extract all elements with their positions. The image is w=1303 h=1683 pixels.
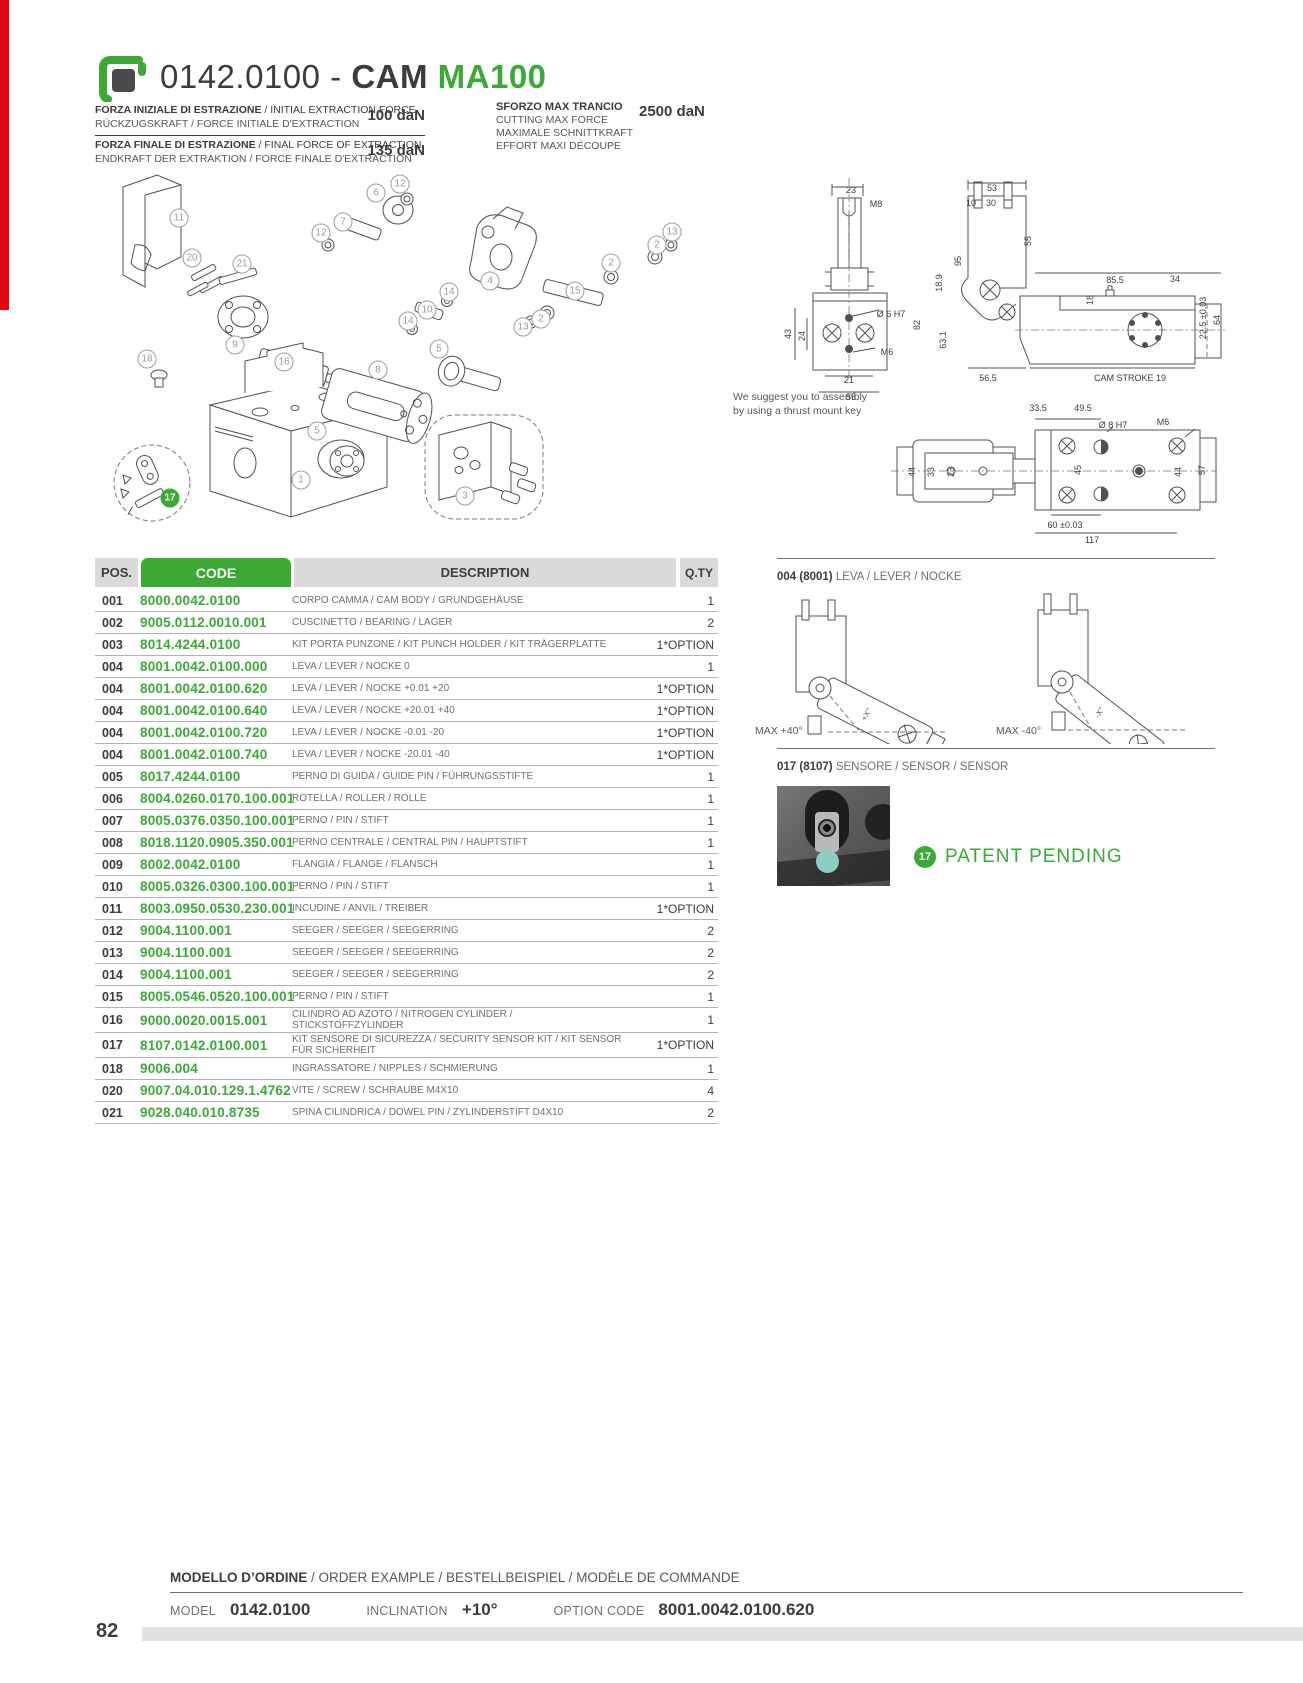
- row-description: INCUDINE / ANVIL / TREIBER: [292, 903, 628, 914]
- row-qty: 1*OPTION: [628, 682, 718, 696]
- exploded-view-drawing: 1161271220211324214101514213916185851317: [95, 165, 720, 530]
- table-row: 0068004.0260.0170.100.001ROTELLA / ROLLE…: [95, 788, 718, 810]
- row-pos: 017: [95, 1038, 140, 1052]
- part-balloon-3: 3: [456, 487, 475, 506]
- row-pos: 007: [95, 814, 140, 828]
- part-balloon-2: 2: [532, 310, 551, 329]
- row-qty: 1: [628, 770, 718, 784]
- dimension-label: Ø 8 H7: [1099, 420, 1128, 430]
- page-number: 82: [96, 1620, 118, 1643]
- title-model: MA100: [438, 58, 547, 95]
- table-row: 0158005.0546.0520.100.001PERNO / PIN / S…: [95, 986, 718, 1008]
- dimension-label: 55: [1023, 236, 1033, 246]
- row-code: 8002.0042.0100: [140, 857, 292, 872]
- model-value: 0142.0100: [230, 1600, 310, 1620]
- table-row: 0118003.0950.0530.230.001INCUDINE / ANVI…: [95, 898, 718, 920]
- part-balloon-5: 5: [430, 340, 449, 359]
- header-description: DESCRIPTION: [294, 558, 676, 587]
- row-code: 8001.0042.0100.720: [140, 725, 292, 740]
- row-pos: 015: [95, 990, 140, 1004]
- dimension-label: 49.5: [1074, 403, 1092, 413]
- part-balloon-11: 11: [170, 209, 189, 228]
- row-description: SPINA CILINDRICA / DOWEL PIN / ZYLINDERS…: [292, 1107, 628, 1118]
- row-pos: 005: [95, 770, 140, 784]
- row-pos: 012: [95, 924, 140, 938]
- row-qty: 1*OPTION: [628, 638, 718, 652]
- dimension-label: 57: [1197, 465, 1207, 475]
- row-description: ROTELLA / ROLLER / ROLLE: [292, 793, 628, 804]
- row-qty: 2: [628, 946, 718, 960]
- dimension-label: 56.5: [979, 373, 997, 383]
- row-qty: 1: [628, 814, 718, 828]
- option-code-value: 8001.0042.0100.620: [658, 1600, 814, 1620]
- part-balloon-6: 6: [367, 184, 386, 203]
- dimension-label: 34: [1170, 274, 1180, 284]
- row-pos: 009: [95, 858, 140, 872]
- dimension-label: 18: [1085, 295, 1095, 305]
- row-description: LEVA / LEVER / NOCKE 0: [292, 661, 628, 672]
- exploded-parts-sketch: [95, 165, 720, 530]
- table-row: 0178107.0142.0100.001KIT SENSORE DI SICU…: [95, 1033, 718, 1058]
- dimension-label: 21: [844, 375, 854, 385]
- row-description: VITE / SCREW / SCHRAUBE M4X10: [292, 1085, 628, 1096]
- part-balloon-18: 18: [138, 350, 157, 369]
- row-qty: 1: [628, 1062, 718, 1076]
- row-pos: 006: [95, 792, 140, 806]
- row-pos: 018: [95, 1062, 140, 1076]
- dimension-label: 24: [797, 331, 807, 341]
- part-balloon-12: 12: [312, 224, 331, 243]
- row-code: 8001.0042.0100.640: [140, 703, 292, 718]
- sensor-teal-cap: [816, 850, 839, 873]
- row-qty: 1*OPTION: [628, 726, 718, 740]
- title-code: 0142.0100: [160, 58, 321, 95]
- table-row: 0209007.04.010.129.1.4762VITE / SCREW / …: [95, 1080, 718, 1102]
- dimension-label: 44: [907, 467, 917, 477]
- row-code: 9028.040.010.8735: [140, 1105, 292, 1120]
- row-description: KIT SENSORE DI SICUREZZA / SECURITY SENS…: [292, 1034, 628, 1056]
- row-pos: 004: [95, 748, 140, 762]
- row-description: CUSCINETTO / BEARING / LAGER: [292, 617, 628, 628]
- part-balloon-4: 4: [481, 272, 500, 291]
- row-pos: 013: [95, 946, 140, 960]
- part-balloon-2: 2: [602, 254, 621, 273]
- sensor-lens: [818, 819, 836, 837]
- row-qty: 1: [628, 880, 718, 894]
- row-qty: 1*OPTION: [628, 748, 718, 762]
- table-row: 0048001.0042.0100.740LEVA / LEVER / NOCK…: [95, 744, 718, 766]
- brand-logo-icon: [95, 52, 149, 102]
- order-example-title: MODELLO D’ORDINE / ORDER EXAMPLE / BESTE…: [170, 1570, 740, 1585]
- row-code: 8005.0376.0350.100.001: [140, 813, 292, 828]
- header-qty: Q.TY: [680, 558, 718, 587]
- row-pos: 016: [95, 1013, 140, 1027]
- row-code: 8107.0142.0100.001: [140, 1038, 292, 1053]
- row-description: SEEGER / SEEGER / SEEGERRING: [292, 947, 628, 958]
- dimension-label: 64: [1212, 315, 1222, 325]
- dimension-label: 63.1: [938, 331, 948, 349]
- row-qty: 2: [628, 924, 718, 938]
- dimension-label: 60 ±0.03: [1048, 520, 1083, 530]
- part-balloon-8: 8: [369, 361, 388, 380]
- dimension-label: 22.5 ±0.03: [1198, 297, 1208, 339]
- dimension-label: 33: [926, 467, 936, 477]
- catalog-page: 0142.0100 - CAM MA100 FORZA INIZIALE DI …: [0, 0, 1303, 1683]
- row-code: 9007.04.010.129.1.4762: [140, 1083, 292, 1098]
- final-force-value: 135 daN: [367, 142, 425, 159]
- row-qty: 1*OPTION: [628, 1038, 718, 1052]
- order-rule: [170, 1592, 1243, 1593]
- row-code: 8001.0042.0100.000: [140, 659, 292, 674]
- table-row: 0129004.1100.001SEEGER / SEEGER / SEEGER…: [95, 920, 718, 942]
- part-balloon-10: 10: [418, 301, 437, 320]
- dimension-label: 23: [946, 467, 956, 477]
- row-code: 9006.004: [140, 1061, 292, 1076]
- cutting-force-spec: SFORZO MAX TRANCIO 2500 daN CUTTING MAX …: [496, 101, 711, 152]
- row-qty: 4: [628, 1084, 718, 1098]
- max-minus40-label: MAX -40°: [996, 725, 1041, 737]
- row-description: PERNO / PIN / STIFT: [292, 815, 628, 826]
- row-qty: 1: [628, 990, 718, 1004]
- option-code-label: OPTION CODE: [554, 1604, 645, 1618]
- row-code: 8001.0042.0100.620: [140, 681, 292, 696]
- row-code: 8017.4244.0100: [140, 769, 292, 784]
- row-pos: 004: [95, 682, 140, 696]
- dimension-label: 45: [1073, 465, 1083, 475]
- lever-section-heading: 004 (8001) LEVA / LEVER / NOCKE: [777, 571, 962, 583]
- part-balloon-16: 16: [275, 353, 294, 372]
- row-description: CILINDRO AD AZOTO / NITROGEN CYLINDER / …: [292, 1009, 628, 1031]
- row-pos: 010: [95, 880, 140, 894]
- row-description: PERNO CENTRALE / CENTRAL PIN / HAUPTSTIF…: [292, 837, 628, 848]
- row-description: FLANGIA / FLANGE / FLANSCH: [292, 859, 628, 870]
- row-qty: 1: [628, 1013, 718, 1027]
- dimension-label: 43: [783, 329, 793, 339]
- part-balloon-14: 14: [399, 312, 418, 331]
- lever-drawing-minus40: -X°: [1010, 592, 1210, 744]
- parts-table-body: 0018000.0042.0100CORPO CAMMA / CAM BODY …: [95, 590, 718, 1124]
- part-balloon-21: 21: [233, 255, 252, 274]
- row-description: PERNO / PIN / STIFT: [292, 991, 628, 1002]
- row-code: 8005.0546.0520.100.001: [140, 989, 292, 1004]
- row-code: 8000.0042.0100: [140, 593, 292, 608]
- table-row: 0139004.1100.001SEEGER / SEEGER / SEEGER…: [95, 942, 718, 964]
- dimension-label: 82: [912, 320, 922, 330]
- row-code: 9000.0020.0015.001: [140, 1013, 292, 1028]
- part-balloon-17: 17: [161, 489, 180, 508]
- patent-pending-label: PATENT PENDING: [945, 846, 1123, 868]
- row-code: 8014.4244.0100: [140, 637, 292, 652]
- dimension-label: 30: [986, 198, 996, 208]
- dimension-label: 117: [1085, 535, 1099, 545]
- row-description: PERNO DI GUIDA / GUIDE PIN / FÜHRUNGSSTI…: [292, 771, 628, 782]
- table-row: 0029005.0112.0010.001CUSCINETTO / BEARIN…: [95, 612, 718, 634]
- row-description: SEEGER / SEEGER / SEEGERRING: [292, 969, 628, 980]
- table-row: 0189006.004INGRASSATORE / NIPPLES / SCHM…: [95, 1058, 718, 1080]
- max-plus40-label: MAX +40°: [755, 725, 803, 737]
- dimension-label: 44: [1173, 467, 1183, 477]
- row-qty: 2: [628, 1106, 718, 1120]
- row-code: 8005.0326.0300.100.001: [140, 879, 292, 894]
- row-description: CORPO CAMMA / CAM BODY / GRUNDGEHÄUSE: [292, 595, 628, 606]
- row-qty: 1: [628, 858, 718, 872]
- row-description: LEVA / LEVER / NOCKE -20.01 -40: [292, 749, 628, 760]
- header-code: CODE: [141, 558, 291, 587]
- row-pos: 004: [95, 704, 140, 718]
- row-qty: 2: [628, 968, 718, 982]
- row-code: 9005.0112.0010.001: [140, 615, 292, 630]
- row-qty: 1: [628, 660, 718, 674]
- title-cam: CAM: [351, 58, 437, 95]
- order-fields: MODEL 0142.0100 INCLINATION +10° OPTION …: [170, 1600, 814, 1620]
- row-code: 8001.0042.0100.740: [140, 747, 292, 762]
- section-divider: [777, 558, 1215, 559]
- row-description: LEVA / LEVER / NOCKE -0.01 -20: [292, 727, 628, 738]
- row-pos: 001: [95, 594, 140, 608]
- part-balloon-9: 9: [226, 336, 245, 355]
- table-row: 0058017.4244.0100PERNO DI GUIDA / GUIDE …: [95, 766, 718, 788]
- security-sensor-photo: [777, 786, 890, 886]
- part-balloon-12: 12: [391, 175, 410, 194]
- dimension-label: M6: [1157, 417, 1170, 427]
- part-balloon-13: 13: [514, 318, 533, 337]
- part-balloon-15: 15: [566, 282, 585, 301]
- row-pos: 020: [95, 1084, 140, 1098]
- table-row: 0108005.0326.0300.100.001PERNO / PIN / S…: [95, 876, 718, 898]
- row-description: SEEGER / SEEGER / SEEGERRING: [292, 925, 628, 936]
- row-code: 8003.0950.0530.230.001: [140, 901, 292, 916]
- part-balloon-1: 1: [292, 471, 311, 490]
- table-row: 0048001.0042.0100.000LEVA / LEVER / NOCK…: [95, 656, 718, 678]
- dimension-label: 10: [966, 198, 976, 208]
- row-description: PERNO / PIN / STIFT: [292, 881, 628, 892]
- table-row: 0038014.4244.0100KIT PORTA PUNZONE / KIT…: [95, 634, 718, 656]
- parts-table: POS. CODE DESCRIPTION Q.TY 0018000.0042.…: [95, 558, 718, 1124]
- balloon-17-badge: 17: [914, 846, 936, 868]
- header-pos: POS.: [95, 558, 138, 587]
- row-code: 9004.1100.001: [140, 945, 292, 960]
- dimension-label: 95: [953, 256, 963, 266]
- row-qty: 1: [628, 792, 718, 806]
- lever-drawing-plus40: +X°: [768, 592, 968, 744]
- row-code: 8004.0260.0170.100.001: [140, 791, 292, 806]
- row-description: KIT PORTA PUNZONE / KIT PUNCH HOLDER / K…: [292, 639, 628, 650]
- part-balloon-20: 20: [183, 249, 202, 268]
- sensor-section-heading: 017 (8107) SENSORE / SENSOR / SENSOR: [777, 761, 1008, 773]
- dimension-label: 53: [987, 183, 997, 193]
- table-row: 0149004.1100.001SEEGER / SEEGER / SEEGER…: [95, 964, 718, 986]
- table-row: 0098002.0042.0100FLANGIA / FLANGE / FLAN…: [95, 854, 718, 876]
- row-qty: 1*OPTION: [628, 704, 718, 718]
- table-row: 0018000.0042.0100CORPO CAMMA / CAM BODY …: [95, 590, 718, 612]
- table-row: 0078005.0376.0350.100.001PERNO / PIN / S…: [95, 810, 718, 832]
- row-description: INGRASSATORE / NIPPLES / SCHMIERUNG: [292, 1063, 628, 1074]
- part-balloon-13: 13: [663, 223, 682, 242]
- row-code: 8018.1120.0905.350.001: [140, 835, 292, 850]
- part-balloon-14: 14: [440, 283, 459, 302]
- assembly-note: We suggest you to assembly by using a th…: [733, 390, 867, 418]
- inclination-value: +10°: [462, 1600, 498, 1620]
- page-title: 0142.0100 - CAM MA100: [160, 58, 547, 96]
- row-pos: 021: [95, 1106, 140, 1120]
- row-pos: 004: [95, 726, 140, 740]
- table-row: 0088018.1120.0905.350.001PERNO CENTRALE …: [95, 832, 718, 854]
- row-qty: 2: [628, 616, 718, 630]
- row-description: LEVA / LEVER / NOCKE +0.01 +20: [292, 683, 628, 694]
- part-balloon-5: 5: [308, 422, 327, 441]
- row-qty: 1: [628, 594, 718, 608]
- row-description: LEVA / LEVER / NOCKE +20.01 +40: [292, 705, 628, 716]
- table-row: 0169000.0020.0015.001CILINDRO AD AZOTO /…: [95, 1008, 718, 1033]
- red-edge-stripe: [0, 0, 9, 310]
- table-row: 0048001.0042.0100.720LEVA / LEVER / NOCK…: [95, 722, 718, 744]
- extraction-force-specs: FORZA INIZIALE DI ESTRAZIONE / INITIAL E…: [95, 101, 425, 170]
- row-qty: 1*OPTION: [628, 902, 718, 916]
- table-header: POS. CODE DESCRIPTION Q.TY: [95, 558, 718, 587]
- row-qty: 1: [628, 836, 718, 850]
- dimension-label: 18.9: [934, 274, 944, 292]
- row-pos: 011: [95, 902, 140, 916]
- cutting-force-value: 2500 daN: [639, 103, 705, 120]
- table-row: 0048001.0042.0100.640LEVA / LEVER / NOCK…: [95, 700, 718, 722]
- patent-pending-note: 17 PATENT PENDING: [914, 846, 1123, 868]
- row-code: 9004.1100.001: [140, 967, 292, 982]
- footer-bar: [142, 1627, 1303, 1641]
- part-balloon-2: 2: [648, 236, 667, 255]
- table-row: 0219028.040.010.8735SPINA CILINDRICA / D…: [95, 1102, 718, 1124]
- dimension-label: 85.5: [1106, 275, 1124, 285]
- spec-initial-force: FORZA INIZIALE DI ESTRAZIONE / INITIAL E…: [95, 101, 425, 136]
- row-pos: 014: [95, 968, 140, 982]
- section-divider: [777, 748, 1215, 749]
- row-pos: 004: [95, 660, 140, 674]
- row-code: 9004.1100.001: [140, 923, 292, 938]
- initial-force-value: 100 daN: [367, 107, 425, 124]
- table-row: 0048001.0042.0100.620LEVA / LEVER / NOCK…: [95, 678, 718, 700]
- row-pos: 008: [95, 836, 140, 850]
- dimension-label: 33.5: [1029, 403, 1047, 413]
- dimension-label: CAM STROKE 19: [1094, 373, 1166, 383]
- row-pos: 003: [95, 638, 140, 652]
- row-pos: 002: [95, 616, 140, 630]
- inclination-label: INCLINATION: [366, 1604, 448, 1618]
- part-balloon-7: 7: [334, 213, 353, 232]
- model-label: MODEL: [170, 1604, 216, 1618]
- drawing-top: 33.549.5Ø 8 H7M644332345445760 ±0.03117: [855, 385, 1217, 550]
- drawing-side: 531030559518.98263.185.5341822.5 ±0.0364…: [855, 168, 1227, 390]
